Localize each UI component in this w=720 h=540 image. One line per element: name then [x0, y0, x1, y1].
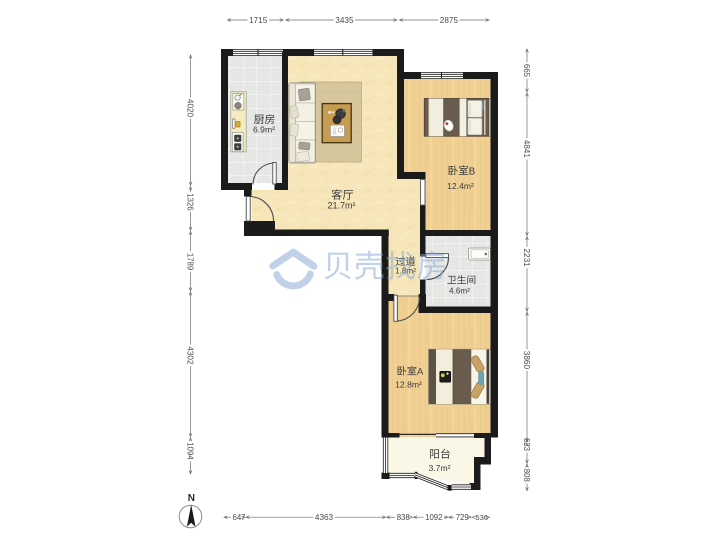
svg-text:3.7m²: 3.7m² [429, 463, 451, 473]
svg-text:N: N [188, 493, 195, 504]
svg-text:2875: 2875 [440, 16, 459, 25]
svg-text:4020: 4020 [186, 99, 195, 118]
svg-text:665: 665 [522, 64, 531, 78]
svg-text:1789: 1789 [186, 253, 195, 270]
svg-text:3435: 3435 [335, 16, 354, 25]
svg-text:2231: 2231 [522, 248, 531, 267]
svg-text:647: 647 [232, 513, 245, 522]
svg-text:4841: 4841 [522, 140, 531, 159]
svg-text:536: 536 [475, 513, 488, 522]
svg-text:729: 729 [456, 513, 469, 522]
svg-text:808: 808 [522, 469, 531, 482]
svg-text:12.8m²: 12.8m² [395, 379, 422, 389]
svg-text:A: A [417, 366, 424, 377]
svg-text:4302: 4302 [186, 346, 195, 365]
svg-text:21.7m²: 21.7m² [327, 201, 355, 211]
svg-text:1715: 1715 [249, 16, 268, 25]
svg-text:623: 623 [522, 438, 531, 451]
svg-text:1094: 1094 [186, 442, 195, 460]
svg-text:838: 838 [397, 513, 410, 522]
svg-text:6.9m²: 6.9m² [253, 125, 275, 135]
svg-text:1326: 1326 [186, 193, 195, 210]
svg-text:B: B [469, 166, 476, 177]
svg-text:4.6m²: 4.6m² [449, 286, 470, 295]
svg-text:3860: 3860 [522, 351, 531, 370]
svg-text:1092: 1092 [425, 513, 442, 522]
svg-text:4363: 4363 [315, 513, 334, 522]
svg-text:12.4m²: 12.4m² [447, 181, 474, 191]
